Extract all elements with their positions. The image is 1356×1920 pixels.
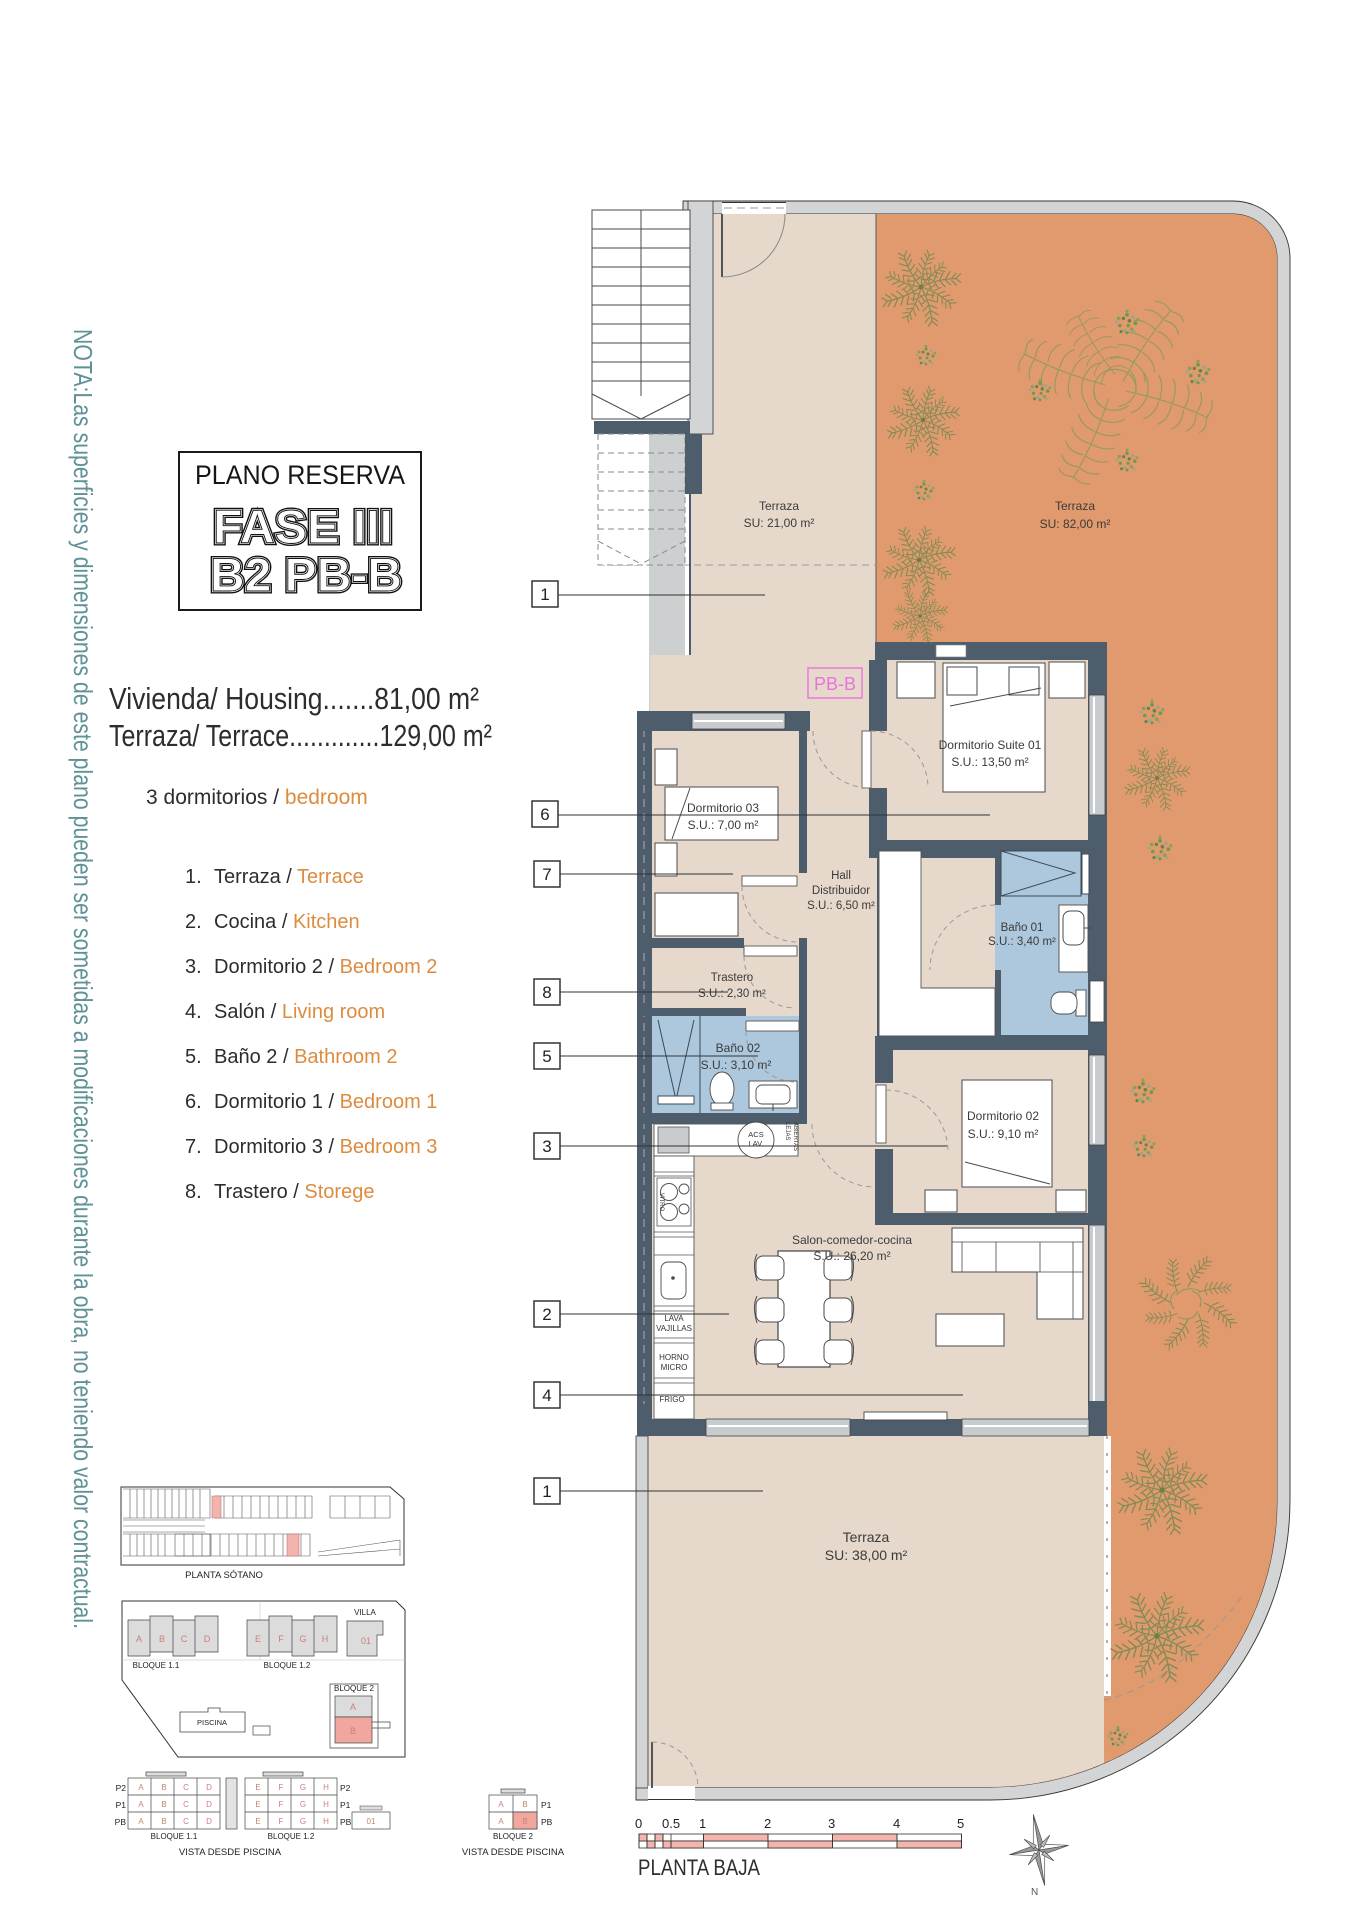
svg-text:H: H bbox=[323, 1800, 329, 1809]
svg-text:VITRO: VITRO bbox=[658, 1193, 664, 1212]
svg-text:D: D bbox=[206, 1783, 212, 1792]
svg-text:FASE III: FASE III bbox=[213, 500, 393, 553]
svg-text:1: 1 bbox=[699, 1816, 706, 1831]
svg-text:1: 1 bbox=[540, 585, 549, 604]
svg-text:F: F bbox=[279, 1817, 284, 1826]
svg-text:A: A bbox=[138, 1800, 144, 1809]
svg-text:PISCINA: PISCINA bbox=[197, 1718, 227, 1727]
svg-text:H: H bbox=[323, 1783, 329, 1792]
svg-text:P1: P1 bbox=[116, 1800, 127, 1810]
svg-text:7.: 7. bbox=[185, 1136, 202, 1158]
svg-text:D: D bbox=[206, 1800, 212, 1809]
svg-text:H: H bbox=[323, 1817, 329, 1826]
svg-text:B: B bbox=[522, 1817, 527, 1826]
svg-text:B2 PB-B: B2 PB-B bbox=[210, 548, 402, 601]
svg-text:4: 4 bbox=[893, 1816, 900, 1831]
svg-text:5.: 5. bbox=[185, 1046, 202, 1068]
svg-text:S.U.: 3,10 m²: S.U.: 3,10 m² bbox=[701, 1058, 772, 1072]
svg-text:S.U.: 9,10 m²: S.U.: 9,10 m² bbox=[968, 1127, 1039, 1141]
svg-text:1.: 1. bbox=[185, 866, 202, 888]
svg-text:Salon-comedor-cocina: Salon-comedor-cocina bbox=[792, 1233, 912, 1247]
svg-text:2: 2 bbox=[764, 1816, 771, 1831]
svg-text:Terraza: Terraza bbox=[759, 499, 799, 513]
svg-text:C: C bbox=[181, 1634, 188, 1644]
svg-text:HORNO: HORNO bbox=[659, 1353, 689, 1362]
svg-text:S.U.: 13,50 m²: S.U.: 13,50 m² bbox=[951, 755, 1028, 769]
svg-text:A: A bbox=[350, 1702, 356, 1712]
svg-text:P1: P1 bbox=[340, 1800, 351, 1810]
svg-text:01: 01 bbox=[367, 1817, 376, 1826]
svg-text:PB-B: PB-B bbox=[814, 674, 856, 694]
svg-text:3: 3 bbox=[828, 1816, 835, 1831]
svg-text:1: 1 bbox=[542, 1482, 551, 1501]
svg-text:Baño 2 / Bathroom 2: Baño 2 / Bathroom 2 bbox=[214, 1046, 397, 1068]
svg-text:3.: 3. bbox=[185, 956, 202, 978]
svg-text:G: G bbox=[300, 1783, 306, 1792]
svg-text:BLOQUE 1.1: BLOQUE 1.1 bbox=[133, 1661, 180, 1670]
svg-text:PB: PB bbox=[340, 1817, 352, 1827]
svg-text:B: B bbox=[161, 1783, 166, 1792]
svg-text:C: C bbox=[183, 1800, 189, 1809]
svg-text:BLOQUE 2: BLOQUE 2 bbox=[334, 1684, 375, 1693]
svg-text:01: 01 bbox=[361, 1636, 371, 1646]
svg-text:G: G bbox=[300, 1800, 306, 1809]
svg-text:Cocina / Kitchen: Cocina / Kitchen bbox=[214, 911, 360, 933]
svg-text:BLOQUE 1.2: BLOQUE 1.2 bbox=[268, 1832, 315, 1841]
svg-text:FRIGO: FRIGO bbox=[659, 1395, 684, 1404]
svg-text:S.U.: 26,20 m²: S.U.: 26,20 m² bbox=[813, 1249, 890, 1263]
svg-text:Vivienda/ Housing.......81,00: Vivienda/ Housing.......81,00 m² bbox=[109, 681, 479, 716]
svg-text:4: 4 bbox=[542, 1386, 551, 1405]
svg-text:BLOQUE 1.1: BLOQUE 1.1 bbox=[151, 1832, 198, 1841]
svg-text:A: A bbox=[138, 1783, 144, 1792]
svg-text:S.U.: 2,30 m²: S.U.: 2,30 m² bbox=[698, 988, 766, 1000]
svg-text:F: F bbox=[278, 1634, 284, 1644]
svg-text:C: C bbox=[183, 1783, 189, 1792]
svg-text:Trastero / Storege: Trastero / Storege bbox=[214, 1181, 374, 1203]
svg-text:VISTA DESDE PISCINA: VISTA DESDE PISCINA bbox=[179, 1847, 282, 1858]
svg-text:ABIERTAS: ABIERTAS bbox=[792, 1122, 798, 1151]
svg-text:B: B bbox=[161, 1817, 166, 1826]
svg-text:4.: 4. bbox=[185, 1001, 202, 1023]
svg-text:E: E bbox=[255, 1634, 261, 1644]
svg-text:2.: 2. bbox=[185, 911, 202, 933]
svg-text:S.U.: 7,00 m²: S.U.: 7,00 m² bbox=[688, 818, 759, 832]
svg-text:Salón / Living room: Salón / Living room bbox=[214, 1001, 385, 1023]
svg-text:Dormitorio 3 / Bedroom 3: Dormitorio 3 / Bedroom 3 bbox=[214, 1136, 437, 1158]
svg-text:Baño 02: Baño 02 bbox=[716, 1041, 761, 1055]
svg-text:VAJILLAS: VAJILLAS bbox=[656, 1324, 692, 1333]
svg-text:MICRO: MICRO bbox=[661, 1363, 688, 1372]
svg-text:NOTA:Las superficies y dimensi: NOTA:Las superficies y dimensiones de es… bbox=[68, 329, 98, 1629]
svg-text:LEJAS: LEJAS bbox=[784, 1122, 790, 1140]
svg-text:3 dormitorios / bedroom: 3 dormitorios / bedroom bbox=[146, 786, 368, 809]
svg-text:SU: 82,00 m²: SU: 82,00 m² bbox=[1040, 517, 1111, 531]
svg-text:8: 8 bbox=[542, 983, 551, 1002]
svg-text:Terraza / Terrace: Terraza / Terrace bbox=[214, 866, 364, 888]
svg-text:S.U.: 6,50 m²: S.U.: 6,50 m² bbox=[807, 900, 875, 912]
svg-text:B: B bbox=[161, 1800, 166, 1809]
svg-text:Dormitorio 2 / Bedroom 2: Dormitorio 2 / Bedroom 2 bbox=[214, 956, 437, 978]
svg-text:A: A bbox=[138, 1817, 144, 1826]
svg-text:SU: 21,00 m²: SU: 21,00 m² bbox=[744, 516, 815, 530]
svg-text:LAVA: LAVA bbox=[664, 1314, 684, 1323]
svg-text:8.: 8. bbox=[185, 1181, 202, 1203]
svg-text:5: 5 bbox=[542, 1047, 551, 1066]
svg-text:5: 5 bbox=[957, 1816, 964, 1831]
svg-text:VISTA DESDE PISCINA: VISTA DESDE PISCINA bbox=[462, 1847, 565, 1858]
svg-text:PLANTA BAJA: PLANTA BAJA bbox=[638, 1855, 760, 1880]
svg-text:PLANTA SÓTANO: PLANTA SÓTANO bbox=[185, 1570, 263, 1581]
svg-text:Terraza: Terraza bbox=[843, 1529, 890, 1545]
svg-text:A: A bbox=[136, 1634, 142, 1644]
svg-text:B: B bbox=[159, 1634, 165, 1644]
svg-text:LAV.: LAV. bbox=[748, 1139, 763, 1148]
svg-text:BLOQUE 2: BLOQUE 2 bbox=[493, 1832, 534, 1841]
svg-text:2: 2 bbox=[542, 1305, 551, 1324]
svg-text:A: A bbox=[498, 1800, 504, 1809]
svg-text:SU: 38,00 m²: SU: 38,00 m² bbox=[825, 1547, 908, 1563]
svg-text:B: B bbox=[350, 1726, 356, 1736]
svg-text:G: G bbox=[299, 1634, 306, 1644]
svg-text:PB: PB bbox=[541, 1817, 553, 1827]
svg-text:P2: P2 bbox=[116, 1783, 127, 1793]
svg-text:Trastero: Trastero bbox=[711, 972, 753, 984]
svg-text:E: E bbox=[255, 1817, 260, 1826]
svg-text:P2: P2 bbox=[340, 1783, 351, 1793]
svg-text:S.U.: 3,40 m²: S.U.: 3,40 m² bbox=[988, 936, 1056, 948]
svg-text:6: 6 bbox=[540, 805, 549, 824]
svg-text:Dormitorio Suite 01: Dormitorio Suite 01 bbox=[939, 738, 1042, 752]
svg-text:Baño 01: Baño 01 bbox=[1001, 922, 1044, 934]
svg-text:0.5: 0.5 bbox=[662, 1816, 680, 1831]
svg-text:B: B bbox=[522, 1800, 527, 1809]
svg-text:Dormitorio 03: Dormitorio 03 bbox=[687, 801, 759, 815]
svg-text:D: D bbox=[204, 1634, 211, 1644]
svg-text:ACS: ACS bbox=[748, 1130, 763, 1139]
svg-text:Terraza: Terraza bbox=[1055, 499, 1095, 513]
svg-text:A: A bbox=[498, 1817, 504, 1826]
svg-text:Terraza/ Terrace.............1: Terraza/ Terrace.............129,00 m² bbox=[109, 718, 492, 753]
svg-text:PLANO RESERVA: PLANO RESERVA bbox=[195, 460, 405, 490]
svg-text:3: 3 bbox=[542, 1137, 551, 1156]
svg-text:PB: PB bbox=[115, 1817, 127, 1827]
svg-text:F: F bbox=[279, 1800, 284, 1809]
svg-text:6.: 6. bbox=[185, 1091, 202, 1113]
svg-text:BLOQUE 1.2: BLOQUE 1.2 bbox=[264, 1661, 311, 1670]
svg-text:VILLA: VILLA bbox=[354, 1608, 376, 1617]
svg-text:G: G bbox=[300, 1817, 306, 1826]
svg-text:Hall: Hall bbox=[831, 870, 851, 882]
svg-text:Dormitorio 1 / Bedroom 1: Dormitorio 1 / Bedroom 1 bbox=[214, 1091, 437, 1113]
svg-text:H: H bbox=[322, 1634, 329, 1644]
svg-text:C: C bbox=[183, 1817, 189, 1826]
svg-text:P1: P1 bbox=[541, 1800, 552, 1810]
svg-text:Dormitorio 02: Dormitorio 02 bbox=[967, 1109, 1039, 1123]
svg-text:0: 0 bbox=[635, 1816, 642, 1831]
svg-text:N: N bbox=[1031, 1887, 1038, 1898]
svg-text:E: E bbox=[255, 1783, 260, 1792]
svg-text:Distribuidor: Distribuidor bbox=[812, 885, 870, 897]
svg-text:7: 7 bbox=[542, 865, 551, 884]
svg-text:F: F bbox=[279, 1783, 284, 1792]
svg-text:E: E bbox=[255, 1800, 260, 1809]
svg-text:D: D bbox=[206, 1817, 212, 1826]
